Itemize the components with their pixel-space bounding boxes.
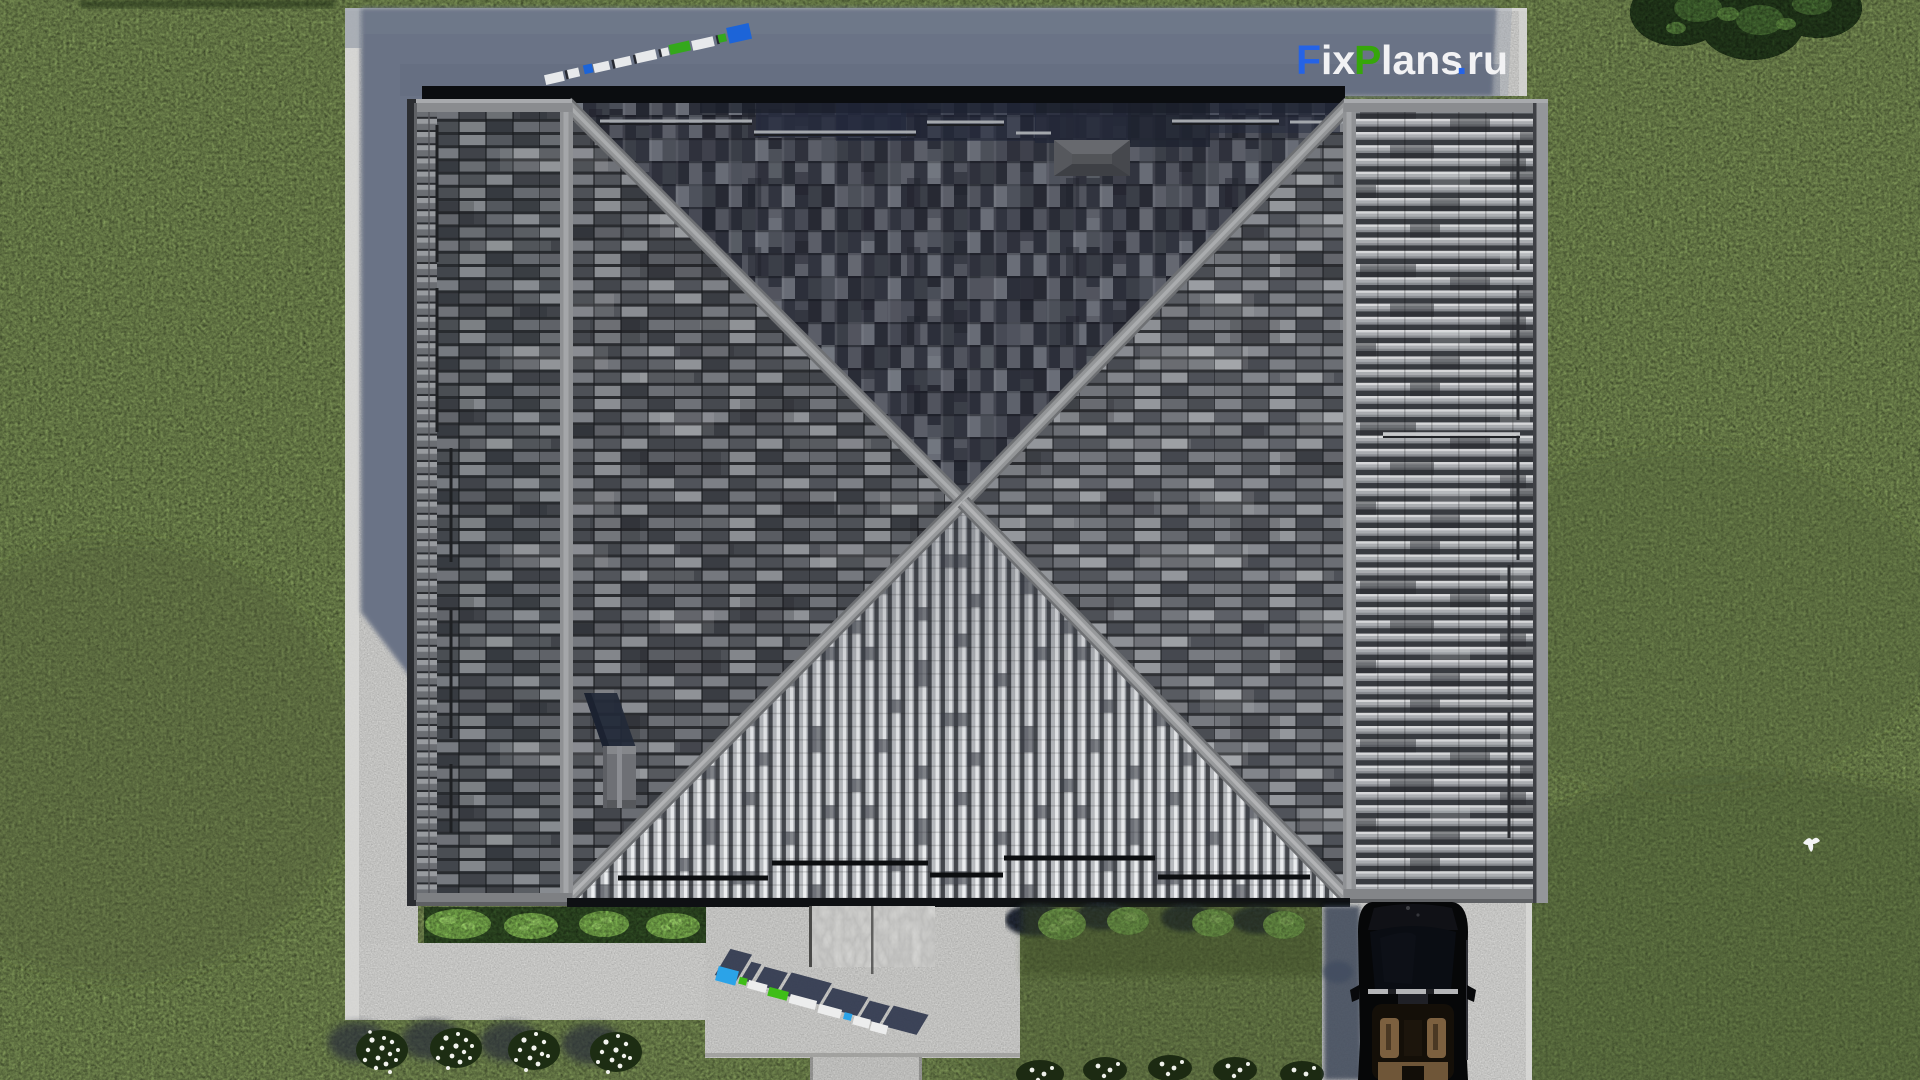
svg-text:lans: lans <box>1381 37 1463 83</box>
svg-text:ru: ru <box>1467 37 1508 83</box>
svg-text:.: . <box>1456 37 1467 83</box>
svg-text:P: P <box>1354 37 1381 83</box>
svg-text:F: F <box>1296 37 1321 83</box>
svg-text:ix: ix <box>1321 37 1355 83</box>
